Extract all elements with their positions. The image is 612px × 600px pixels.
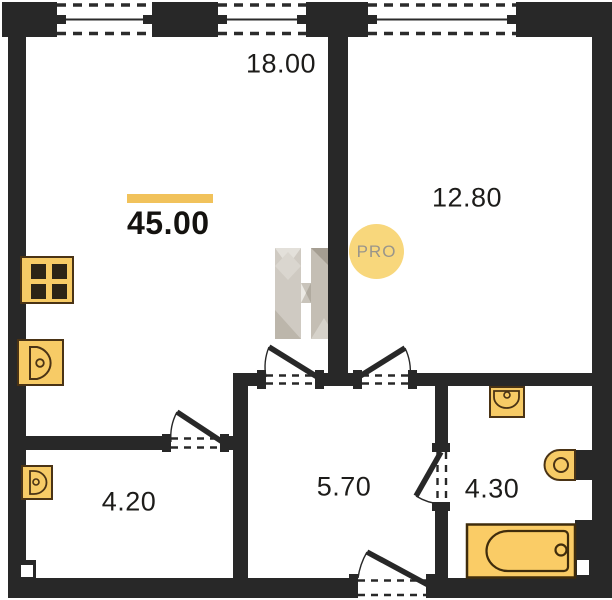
toilet-icon [545,450,592,480]
window-1-icon [57,5,152,34]
room-area-label-bathroom: 4.30 [465,474,520,505]
door-storage-room [171,412,224,448]
room-area-label-storage: 4.20 [102,487,157,518]
doors [171,347,446,595]
floor-plan-drawing [0,0,612,600]
door-living-hallway [265,347,319,384]
watermark-h-icon [275,248,337,339]
windows [57,5,516,34]
window-3-icon [368,5,516,34]
pro-badge-label: PRO [357,242,397,262]
door-bedroom-hallway [357,348,410,384]
storage-sink-icon [22,466,52,499]
total-area: 45.00 [127,194,213,239]
total-area-label: 45.00 [127,207,213,239]
window-2-icon [218,5,306,34]
stove-icon [21,257,73,303]
door-entrance [358,552,430,595]
total-area-accent-bar [127,194,213,203]
door-bathroom [416,452,446,504]
room-area-label-bedroom: 12.80 [432,183,502,214]
floor-plan: 18.00 12.80 4.20 5.70 4.30 45.00 PRO [0,0,612,600]
kitchen-sink-icon [18,340,63,385]
bathroom-sink-icon [490,387,524,417]
room-area-label-hallway: 5.70 [317,472,372,503]
room-area-label-living: 18.00 [246,49,316,80]
bathtub-icon [467,525,575,578]
pro-badge: PRO [349,224,404,279]
